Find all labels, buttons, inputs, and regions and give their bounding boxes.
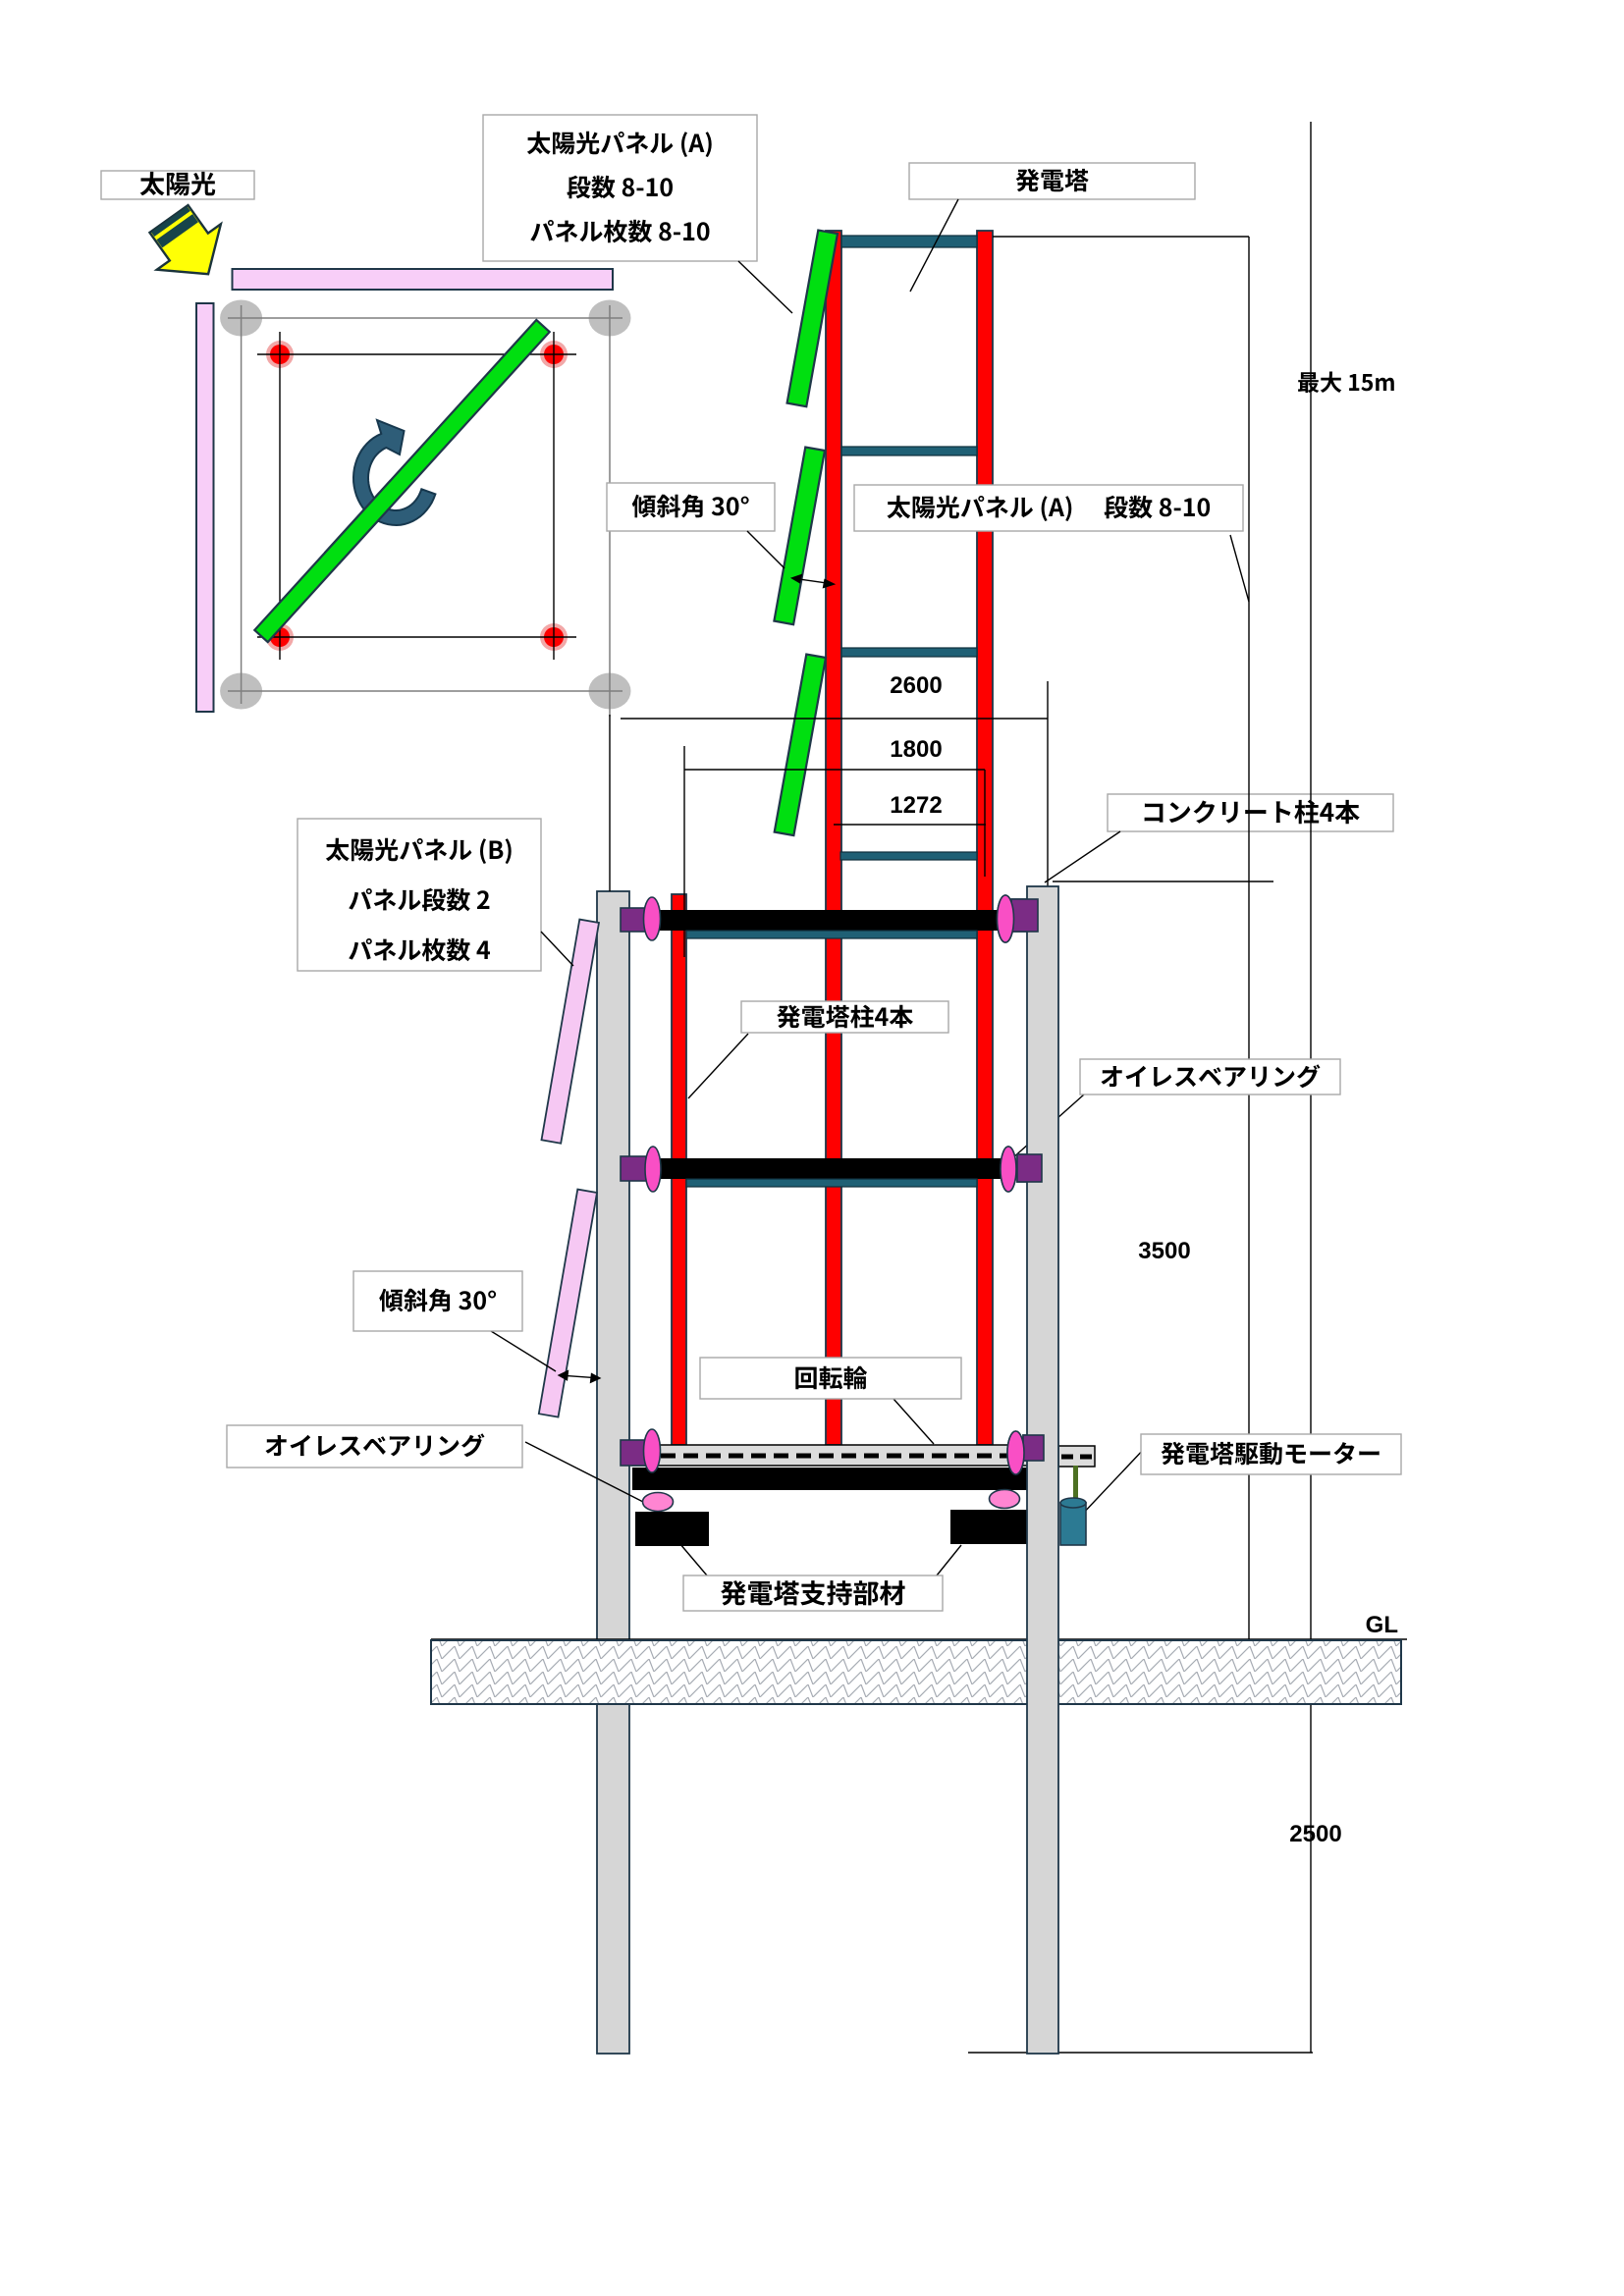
svg-text:2600: 2600 (890, 672, 942, 699)
svg-text:1800: 1800 (890, 736, 942, 763)
svg-text:3500: 3500 (1138, 1238, 1190, 1264)
svg-text:GL: GL (1366, 1612, 1398, 1638)
svg-text:2500: 2500 (1289, 1821, 1341, 1847)
svg-text:1272: 1272 (890, 792, 942, 819)
